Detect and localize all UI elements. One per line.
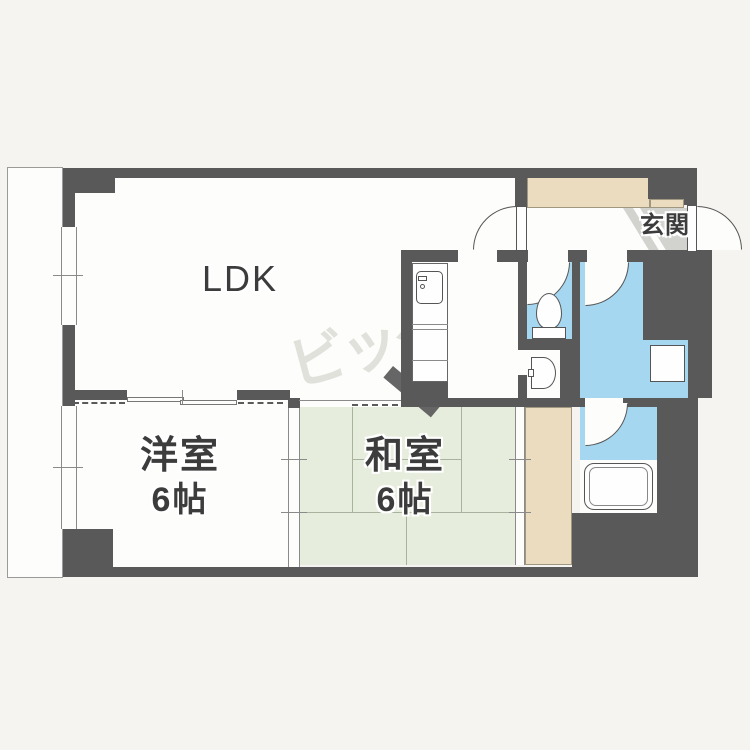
wall — [401, 257, 412, 383]
ldk-sliding-door-panel — [180, 400, 237, 405]
closet-floor — [525, 407, 572, 565]
kitchen-divider-line — [412, 329, 448, 330]
closet-sliding-door — [515, 407, 525, 565]
wall — [657, 398, 698, 577]
wall — [684, 168, 697, 205]
wall — [623, 398, 657, 407]
wall — [237, 390, 290, 400]
opening-dashed-line — [73, 402, 125, 404]
closet-door-tick — [509, 512, 531, 513]
wall — [401, 250, 458, 262]
ldk-sliding-door-panel — [127, 397, 184, 402]
washbasin-icon — [531, 357, 556, 389]
wall — [518, 339, 572, 350]
toilet-bowl-icon — [536, 293, 562, 329]
fusuma-tick — [281, 512, 307, 513]
wall — [643, 262, 712, 340]
wall — [515, 168, 527, 208]
kitchen-divider-line — [412, 324, 448, 325]
balcony-floor — [8, 168, 62, 577]
wall — [72, 390, 127, 400]
kitchen-divider-line — [412, 360, 448, 361]
front-door-swing-icon — [697, 206, 742, 250]
closet-door-tick — [509, 459, 531, 460]
floor-plan: ビッグ — [0, 0, 750, 750]
entrance-label: 玄関 — [632, 213, 698, 238]
window-tick — [53, 275, 83, 276]
wall — [627, 250, 712, 262]
ldk-door-leaf — [516, 206, 527, 251]
shoe-cabinet-step — [650, 199, 684, 208]
japanese-room-track-line — [299, 400, 401, 401]
wall — [63, 168, 693, 178]
kitchen-faucet-icon — [420, 284, 425, 289]
fusuma-tick — [281, 459, 307, 460]
wall — [568, 250, 587, 262]
ldk-window — [61, 227, 77, 325]
japanese-room-label: 和室 — [320, 437, 490, 477]
wall — [497, 250, 528, 262]
kitchen-faucet-icon — [418, 276, 427, 281]
ldk-label: LDK — [150, 260, 330, 298]
wall — [572, 513, 657, 577]
wall — [688, 340, 712, 398]
toilet-door-gap — [528, 250, 568, 262]
toilet-tank-icon — [532, 327, 566, 339]
wall — [572, 262, 580, 398]
washbasin-entry-gap — [518, 350, 527, 375]
western-room-area: 6帖 — [95, 483, 265, 519]
kitchen-corridor-floor — [448, 262, 518, 398]
shoe-cabinet — [527, 177, 650, 208]
tatami-line — [406, 512, 407, 565]
washbasin-faucet-icon — [528, 369, 534, 377]
fusuma-partition — [288, 408, 300, 567]
wall — [560, 350, 572, 398]
bathtub-inner-line — [589, 467, 648, 506]
western-room-label: 洋室 — [95, 437, 265, 477]
washing-machine-pan-icon — [650, 345, 685, 382]
opening-dashed-line — [352, 404, 398, 406]
hallway-door-gap — [587, 250, 627, 262]
wall — [518, 375, 527, 398]
wall — [63, 178, 75, 227]
window-tick — [53, 467, 83, 468]
japanese-room-area: 6帖 — [320, 483, 490, 519]
wall — [518, 262, 527, 350]
kitchen-entry-gap — [458, 250, 497, 262]
opening-dashed-line — [238, 402, 283, 404]
sliding-door-tick — [182, 390, 183, 404]
